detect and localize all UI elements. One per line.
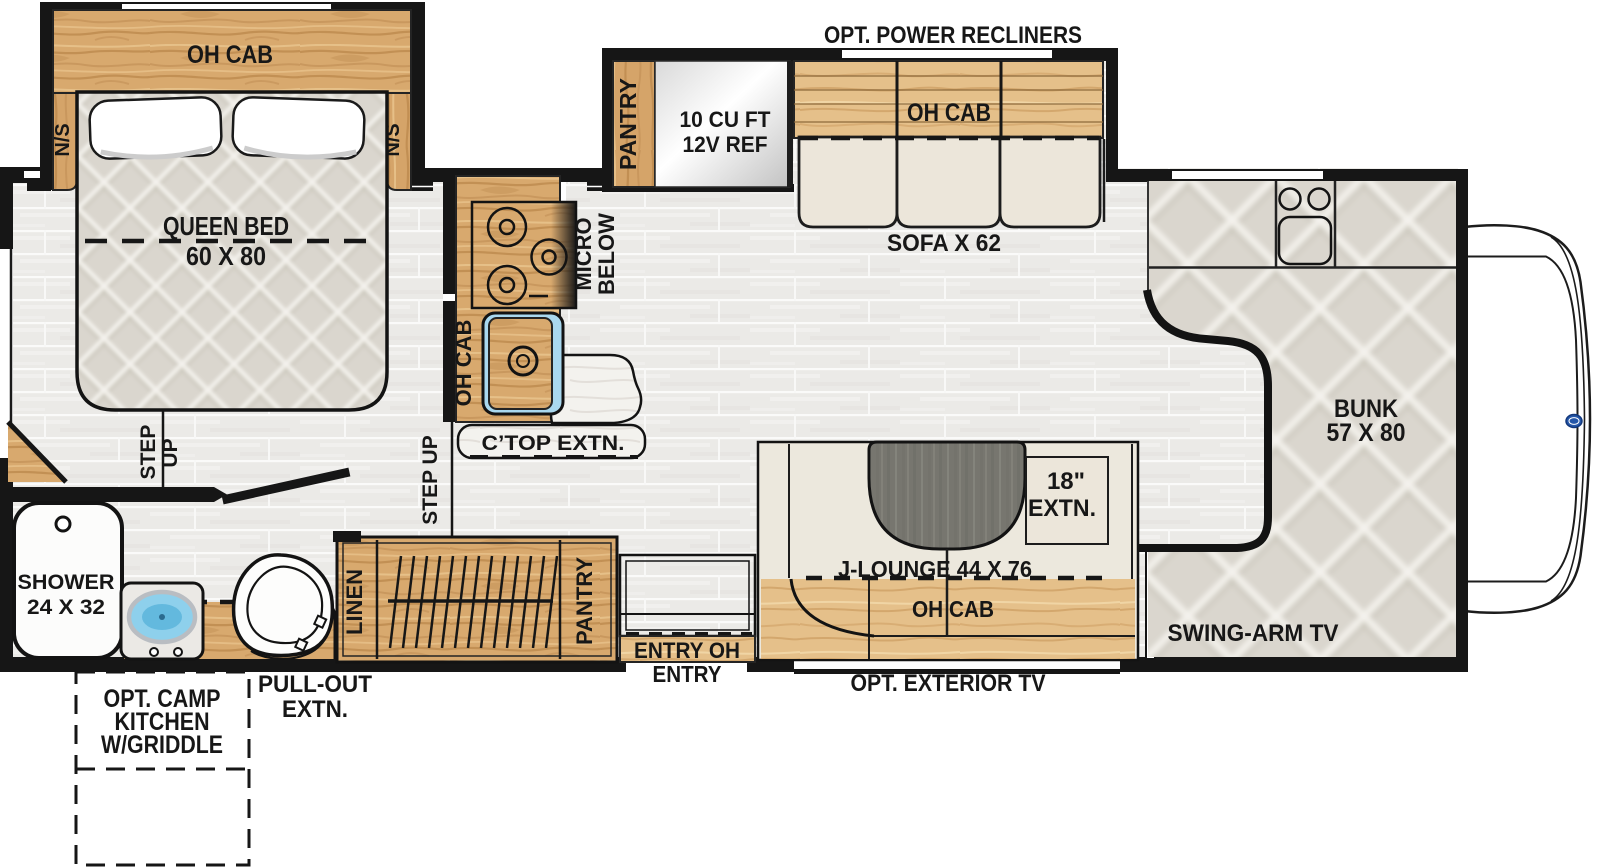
svg-text:MICRO: MICRO xyxy=(571,217,596,290)
svg-text:ENTRY: ENTRY xyxy=(653,661,722,687)
svg-text:OH CAB: OH CAB xyxy=(912,596,994,622)
svg-text:EXTN.: EXTN. xyxy=(1028,495,1096,522)
svg-text:PANTRY: PANTRY xyxy=(572,557,597,645)
svg-text:12V REF: 12V REF xyxy=(683,132,768,157)
svg-text:PULL-OUT: PULL-OUT xyxy=(258,671,372,698)
svg-text:57 X 80: 57 X 80 xyxy=(1327,419,1406,447)
svg-text:STEP UP: STEP UP xyxy=(419,435,442,524)
svg-text:PANTRY: PANTRY xyxy=(615,78,641,170)
svg-text:J-LOUNGE 44 X 76: J-LOUNGE 44 X 76 xyxy=(838,556,1032,582)
svg-text:QUEEN BED: QUEEN BED xyxy=(163,211,289,241)
svg-text:BELOW: BELOW xyxy=(594,213,619,295)
svg-text:24 X 32: 24 X 32 xyxy=(27,596,105,619)
svg-text:SHOWER: SHOWER xyxy=(18,571,115,594)
svg-text:OPT. POWER RECLINERS: OPT. POWER RECLINERS xyxy=(824,22,1082,49)
svg-text:C’TOP EXTN.: C’TOP EXTN. xyxy=(482,432,625,455)
svg-text:LINEN: LINEN xyxy=(342,569,367,635)
svg-text:60 X 80: 60 X 80 xyxy=(186,241,266,271)
svg-text:10 CU FT: 10 CU FT xyxy=(680,107,772,132)
svg-text:OH CAB: OH CAB xyxy=(907,99,991,127)
svg-text:SOFA X 62: SOFA X 62 xyxy=(887,230,1001,257)
svg-text:UP: UP xyxy=(159,438,182,467)
svg-text:OH CAB: OH CAB xyxy=(187,41,273,69)
svg-text:EXTN.: EXTN. xyxy=(282,696,348,723)
svg-text:OH CAB: OH CAB xyxy=(451,320,476,407)
svg-text:18": 18" xyxy=(1047,468,1085,495)
svg-text:OPT. EXTERIOR TV: OPT. EXTERIOR TV xyxy=(851,670,1046,697)
svg-text:W/GRIDDLE: W/GRIDDLE xyxy=(101,731,223,759)
svg-text:STEP: STEP xyxy=(137,425,160,480)
svg-text:SWING-ARM TV: SWING-ARM TV xyxy=(1168,620,1339,647)
svg-text:ENTRY OH: ENTRY OH xyxy=(634,638,740,663)
svg-text:N/S: N/S xyxy=(52,123,74,156)
